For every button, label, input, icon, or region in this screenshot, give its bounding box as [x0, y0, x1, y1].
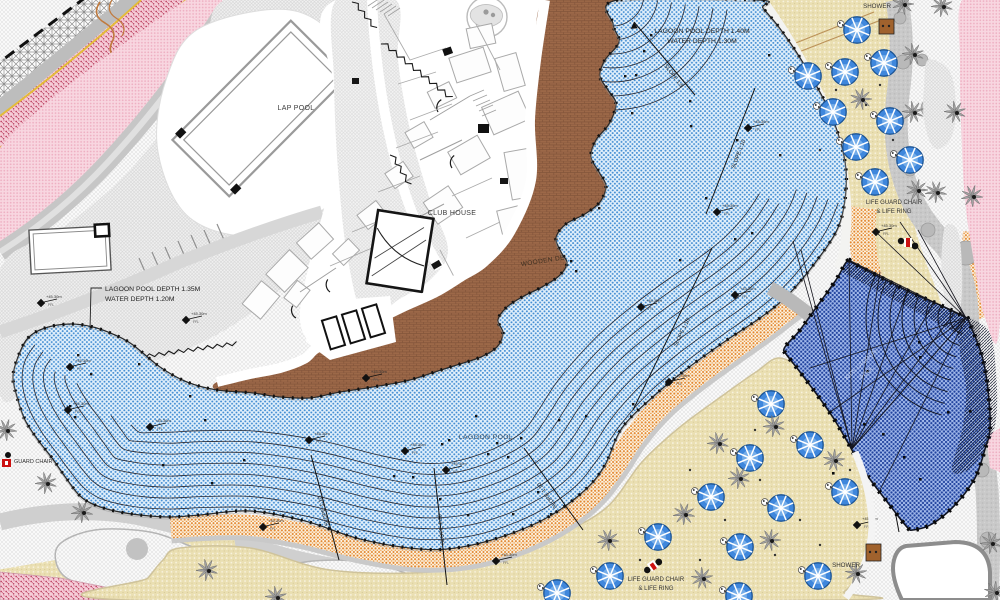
svg-text:FFL: FFL: [755, 128, 761, 132]
svg-text:SHOWER: SHOWER: [863, 3, 891, 10]
svg-text:+45.30m: +45.30m: [451, 461, 467, 466]
svg-text:+45.30m: +45.30m: [881, 223, 897, 228]
svg-text:+45.30m: +45.30m: [371, 369, 387, 374]
svg-text:+45.30m: +45.30m: [191, 311, 207, 316]
svg-text:+45.30m: +45.30m: [722, 203, 738, 208]
svg-text:LIFE GUARD CHAIR: LIFE GUARD CHAIR: [628, 577, 685, 583]
svg-text:& LIFE RING: & LIFE RING: [876, 209, 911, 215]
svg-text:FFL: FFL: [316, 440, 322, 444]
svg-text:FFL: FFL: [270, 527, 276, 531]
svg-text:GUARD CHAIR: GUARD CHAIR: [14, 459, 53, 465]
svg-text:+45.30m: +45.30m: [75, 358, 91, 363]
svg-text:FFL: FFL: [157, 427, 163, 431]
svg-text:FFL: FFL: [648, 307, 654, 311]
svg-text:+45.30m: +45.30m: [73, 401, 89, 406]
svg-text:+45.30m: +45.30m: [410, 442, 426, 447]
svg-text:WATER DEPTH 1.20M: WATER DEPTH 1.20M: [105, 296, 175, 303]
svg-text:+45.30m: +45.30m: [740, 286, 756, 291]
svg-text:+45.30m: +45.30m: [46, 294, 62, 299]
svg-text:LAP POOL: LAP POOL: [278, 105, 315, 112]
svg-text:WATER DEPTH 1.30M: WATER DEPTH 1.30M: [667, 38, 737, 45]
svg-text:FFL: FFL: [75, 410, 81, 414]
svg-text:FFL: FFL: [883, 232, 889, 236]
svg-text:LIFE GUARD CHAIR: LIFE GUARD CHAIR: [866, 200, 923, 206]
svg-text:FFL: FFL: [48, 303, 54, 307]
svg-text:LAGOON POOL: LAGOON POOL: [459, 434, 513, 441]
svg-text:+45.30m: +45.30m: [268, 518, 284, 523]
svg-text:FFL: FFL: [676, 382, 682, 386]
svg-text:+45.30m: +45.30m: [753, 119, 769, 124]
svg-text:FFL: FFL: [412, 451, 418, 455]
svg-text:FFL: FFL: [193, 320, 199, 324]
svg-text:& LIFE RING: & LIFE RING: [638, 586, 673, 592]
svg-text:FFL: FFL: [503, 561, 509, 565]
svg-text:+45.30m: +45.30m: [501, 552, 517, 557]
svg-text:LAGOON POOL DEPTH 1.40M: LAGOON POOL DEPTH 1.40M: [654, 28, 750, 35]
svg-text:+45.30m: +45.30m: [314, 431, 330, 436]
svg-text:FFL: FFL: [373, 378, 379, 382]
svg-text:FFL: FFL: [742, 295, 748, 299]
svg-text:CLUB HOUSE: CLUB HOUSE: [428, 210, 477, 217]
svg-text:FFL: FFL: [724, 212, 730, 216]
svg-text:+45.30m: +45.30m: [155, 418, 171, 423]
svg-text:SHOWER: SHOWER: [832, 562, 860, 569]
svg-text:+45.30m: +45.30m: [646, 298, 662, 303]
svg-text:+45.30m: +45.30m: [674, 373, 690, 378]
svg-text:FFL: FFL: [77, 367, 83, 371]
svg-text:LAGOON POOL DEPTH 1.35M: LAGOON POOL DEPTH 1.35M: [105, 286, 201, 293]
svg-text:FFL: FFL: [453, 470, 459, 474]
